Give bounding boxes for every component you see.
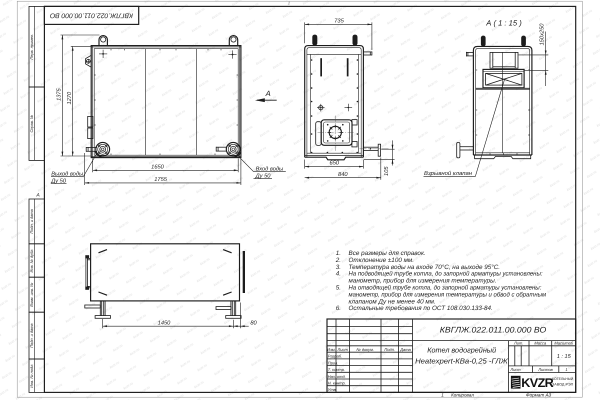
svg-text:Масса: Масса <box>534 341 547 346</box>
svg-text:КВГЛЖ.022.011.00.000 ВО: КВГЛЖ.022.011.00.000 ВО <box>49 11 133 18</box>
svg-text:Инв. № подл.: Инв. № подл. <box>29 364 34 388</box>
svg-text:Взрывной клапан: Взрывной клапан <box>424 170 473 177</box>
svg-text:Котел водогрейный: Котел водогрейный <box>427 346 496 355</box>
svg-text:650: 650 <box>330 161 340 167</box>
svg-text:Т. контр.: Т. контр. <box>328 367 345 372</box>
svg-text:Выход воды: Выход воды <box>51 170 84 177</box>
svg-text:№ докум.: № докум. <box>356 347 374 352</box>
svg-text:Изм.: Изм. <box>327 347 336 352</box>
svg-text:Подп. и дата: Подп. и дата <box>29 323 34 348</box>
svg-text:6.: 6. <box>336 305 341 312</box>
svg-text:Взам. инв. №: Взам. инв. № <box>29 282 34 307</box>
svg-text:Остальные требования по ОСТ 10: Остальные требования по ОСТ 108.030.133-… <box>349 305 493 312</box>
svg-text:4.: 4. <box>336 271 341 278</box>
svg-text:Подп.: Подп. <box>384 347 395 352</box>
svg-text:150x250: 150x250 <box>540 23 546 46</box>
svg-text:Heatexpert-КВа-0,25 -ГЛЖ: Heatexpert-КВа-0,25 -ГЛЖ <box>415 357 509 366</box>
svg-text:Масштаб: Масштаб <box>554 341 573 346</box>
svg-text:Копировал: Копировал <box>451 392 474 397</box>
svg-text:1755: 1755 <box>154 177 167 183</box>
svg-text:1450: 1450 <box>158 320 171 326</box>
svg-text:А ( 1 : 15 ): А ( 1 : 15 ) <box>485 18 522 27</box>
svg-text:КВГЛЖ.022.011.00.000 ВО: КВГЛЖ.022.011.00.000 ВО <box>440 325 547 334</box>
svg-text:А: А <box>35 193 40 199</box>
svg-text:1: 1 <box>565 367 567 372</box>
svg-text:Лист: Лист <box>509 367 521 372</box>
svg-text:735: 735 <box>334 19 344 25</box>
svg-text:1375: 1375 <box>57 87 63 100</box>
svg-text:80: 80 <box>250 321 257 327</box>
svg-text:Вход воды: Вход воды <box>256 165 284 172</box>
svg-text:Нач. отд.: Нач. отд. <box>328 374 346 379</box>
svg-text:Формат А3: Формат А3 <box>526 392 552 397</box>
svg-text:Утв.: Утв. <box>328 387 337 392</box>
svg-text:KVZR: KVZR <box>521 376 553 390</box>
svg-text:105: 105 <box>384 166 390 176</box>
svg-text:Справ. №: Справ. № <box>29 114 34 132</box>
svg-text:Подп. и дата: Подп. и дата <box>29 208 34 233</box>
svg-text:Дата: Дата <box>399 347 411 352</box>
svg-text:Листов: Листов <box>537 367 553 372</box>
svg-text:5.: 5. <box>336 285 341 292</box>
svg-text:Лист: Лист <box>337 347 349 352</box>
svg-text:Пров.: Пров. <box>328 360 339 365</box>
svg-text:1270: 1270 <box>67 91 73 104</box>
svg-text:Разраб.: Разраб. <box>328 354 342 359</box>
svg-text:Лит.: Лит. <box>513 341 523 346</box>
svg-text:А: А <box>265 89 271 98</box>
svg-text:1650: 1650 <box>151 164 164 170</box>
svg-text:840: 840 <box>338 172 348 178</box>
svg-text:Инв. № дубл.: Инв. № дубл. <box>29 249 34 273</box>
svg-text:1 : 15: 1 : 15 <box>557 354 572 360</box>
svg-text:ЗАВОД РЭП: ЗАВОД РЭП <box>552 383 574 387</box>
svg-text:КОТЕЛЬНЫЙ: КОТЕЛЬНЫЙ <box>552 376 574 381</box>
svg-text:1: 1 <box>441 392 444 397</box>
svg-text:Н. контр.: Н. контр. <box>328 381 346 386</box>
svg-text:Перв. примен.: Перв. примен. <box>29 34 34 60</box>
